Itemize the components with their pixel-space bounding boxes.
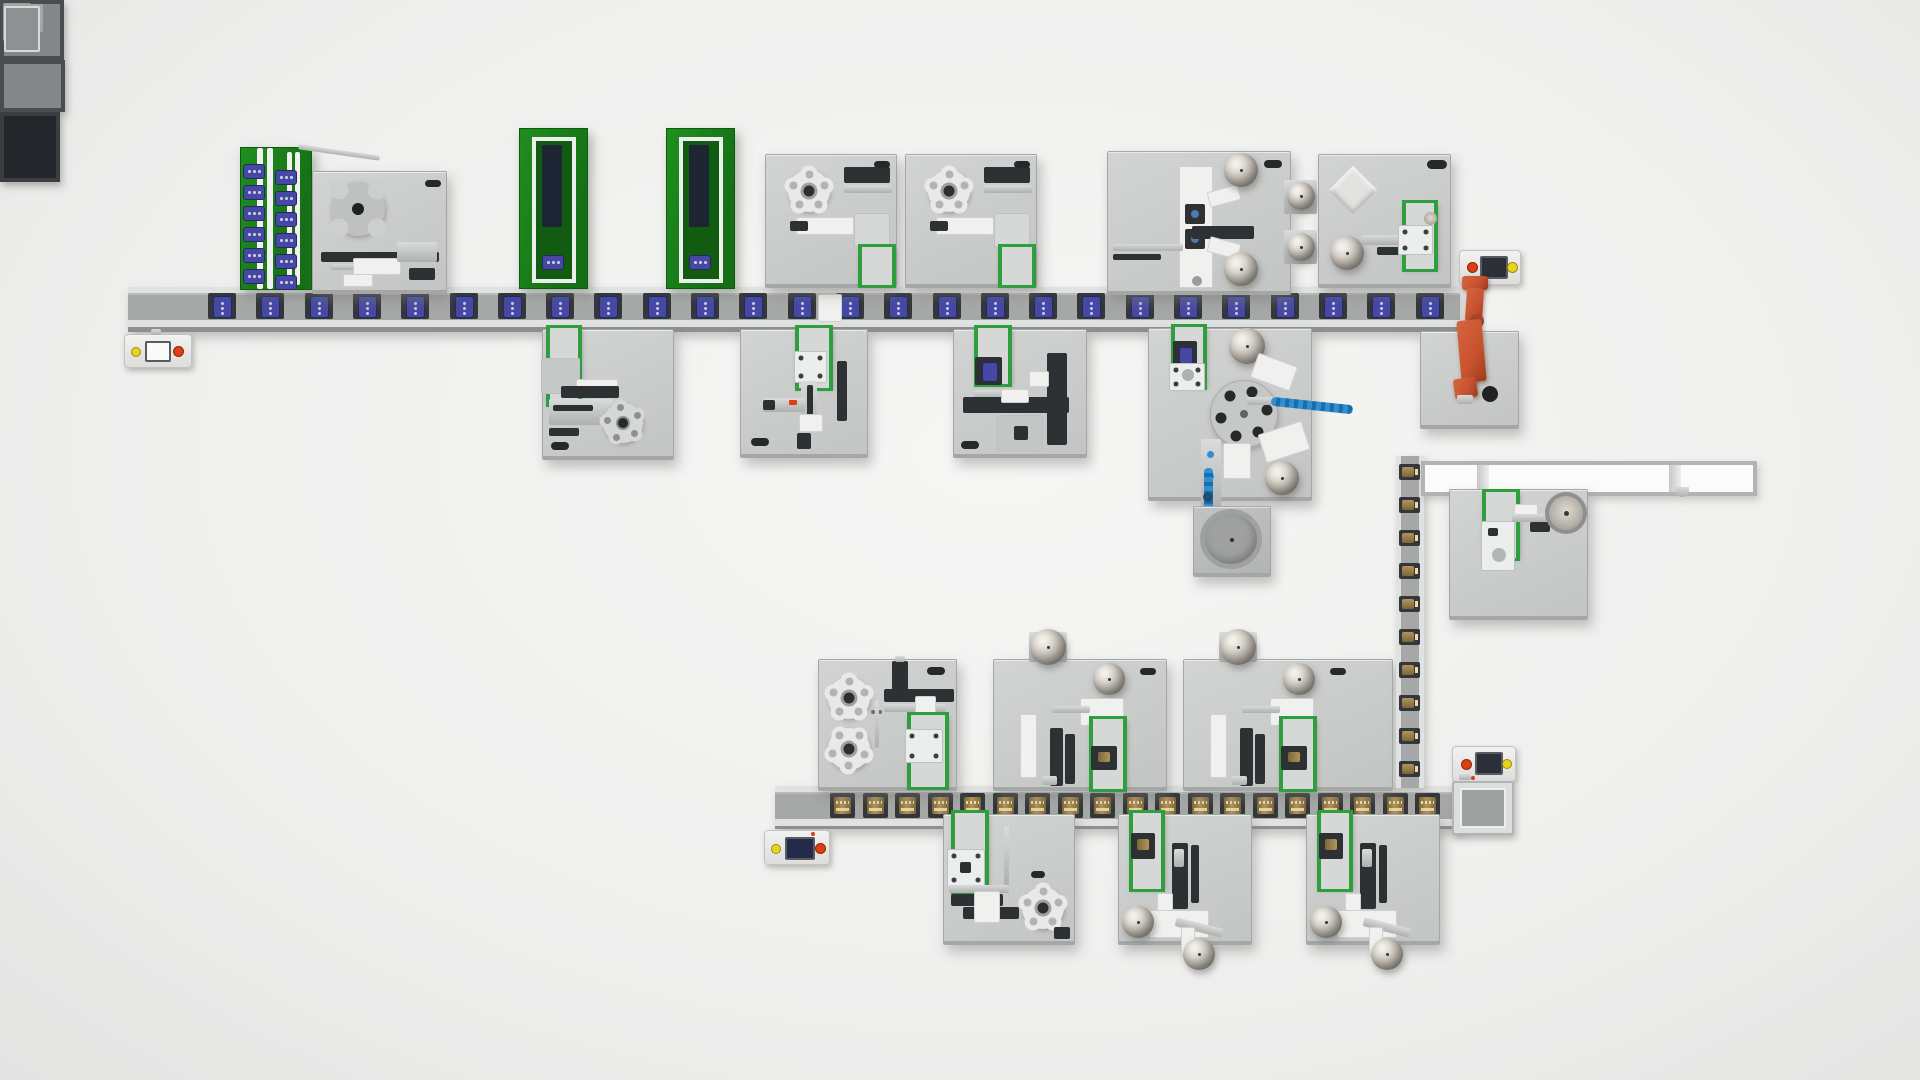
track-end bbox=[1203, 492, 1213, 502]
clamp-block bbox=[409, 268, 435, 280]
pallet-carrier bbox=[498, 293, 526, 319]
pallet-carrier bbox=[1399, 629, 1420, 645]
green-lift bbox=[998, 247, 1036, 285]
red-marker bbox=[789, 400, 797, 405]
pallet-carrier bbox=[208, 293, 236, 319]
pallet-carrier bbox=[1222, 293, 1250, 319]
pallet-carrier bbox=[1399, 497, 1420, 513]
dial-table-station bbox=[1148, 328, 1312, 501]
pallet-carrier bbox=[830, 793, 855, 818]
foot-block bbox=[1042, 776, 1057, 785]
sphere-feeder-station-1 bbox=[993, 659, 1167, 791]
magazine-part-blue bbox=[275, 275, 297, 290]
feeder-block bbox=[397, 242, 437, 262]
yellow-button[interactable] bbox=[1507, 262, 1518, 273]
bowl-feeder-sphere bbox=[1310, 906, 1342, 938]
pallet-carrier bbox=[1399, 530, 1420, 546]
pallet-carrier bbox=[1271, 293, 1299, 319]
right-process-station bbox=[1449, 489, 1588, 620]
pallet-carrier bbox=[305, 293, 333, 319]
slide-rail bbox=[844, 185, 892, 193]
magazine-tower-1 bbox=[240, 147, 312, 290]
part-gold bbox=[1325, 839, 1337, 850]
tool-plate bbox=[1210, 714, 1227, 778]
bowl-feeder-station bbox=[1193, 506, 1271, 577]
slide-block bbox=[1377, 247, 1399, 255]
rotary-turntable bbox=[331, 182, 385, 236]
slide-rail bbox=[984, 185, 1032, 193]
hmi-screen[interactable] bbox=[1475, 752, 1503, 775]
bowl-feeder-sphere bbox=[1224, 153, 1258, 187]
handle-slot bbox=[1140, 668, 1156, 675]
dial-segment bbox=[856, 746, 873, 763]
magazine-part-blue bbox=[243, 185, 265, 200]
pallet-carrier bbox=[353, 293, 381, 319]
pallet-carrier bbox=[1399, 464, 1420, 480]
bowl-feeder-sphere bbox=[1287, 182, 1315, 210]
dial-segment bbox=[840, 757, 857, 774]
feed-rail bbox=[1052, 706, 1090, 713]
bowl-feeder-sphere bbox=[1122, 906, 1154, 938]
pallet-carrier bbox=[739, 293, 767, 319]
assembly-station-2 bbox=[905, 154, 1037, 288]
pallet-carrier bbox=[256, 293, 284, 319]
dial-segment bbox=[925, 177, 942, 194]
guide-pole bbox=[1004, 826, 1009, 886]
magazine-part-blue bbox=[243, 164, 265, 179]
handle-slot bbox=[874, 161, 890, 168]
pallet-carrier bbox=[1399, 761, 1420, 777]
hmi-terminal-bottom-right bbox=[1452, 746, 1516, 782]
feed-rail bbox=[1242, 706, 1280, 713]
dial-segment bbox=[1035, 883, 1052, 900]
bowl-feeder-sphere bbox=[1183, 938, 1215, 970]
pallet-carrier bbox=[1090, 793, 1115, 818]
estop-light bbox=[811, 832, 815, 836]
slide-bar bbox=[1379, 845, 1387, 903]
part-blue bbox=[1179, 347, 1193, 364]
red-button[interactable] bbox=[1461, 759, 1472, 770]
bowl-feeder-sphere bbox=[1371, 938, 1403, 970]
feeder-station-big bbox=[1107, 151, 1291, 295]
dial-segment bbox=[941, 166, 958, 183]
handle-slot bbox=[425, 180, 441, 187]
disc-center bbox=[1564, 511, 1569, 516]
dial-segment bbox=[831, 727, 848, 744]
carriage bbox=[1001, 389, 1029, 403]
parts-dial bbox=[788, 170, 830, 212]
bowl-feeder-sphere bbox=[1287, 233, 1315, 261]
slide-bar bbox=[1191, 845, 1199, 903]
fixture-bore bbox=[1182, 369, 1194, 381]
dial-segment bbox=[831, 703, 848, 720]
fixture-plate bbox=[1481, 521, 1515, 571]
sensor-plate bbox=[974, 891, 1000, 923]
magazine-tower-2 bbox=[519, 128, 588, 289]
magazine-slot bbox=[689, 145, 709, 227]
feeder-station-right bbox=[1318, 154, 1451, 288]
track-roller bbox=[1207, 451, 1214, 458]
pallet-carrier bbox=[1399, 596, 1420, 612]
slide-rail bbox=[1361, 235, 1403, 245]
factory-line-top-view bbox=[0, 0, 1920, 1080]
magazine-part-blue bbox=[243, 248, 265, 263]
disc-magazine-station bbox=[818, 659, 957, 791]
parts-dial bbox=[603, 403, 643, 443]
pallet-carrier bbox=[1399, 728, 1420, 744]
pallet-carrier bbox=[1077, 293, 1105, 319]
pallet-carrier bbox=[1253, 793, 1278, 818]
robot-gripper bbox=[1457, 395, 1473, 404]
part-gold bbox=[1137, 839, 1149, 850]
foot-block bbox=[797, 433, 811, 449]
magazine-rail bbox=[267, 148, 273, 289]
assembly-station-1 bbox=[765, 154, 897, 288]
bowl-feeder-sphere bbox=[1220, 629, 1256, 665]
bowl-feeder-sphere bbox=[1283, 663, 1315, 695]
dial-segment bbox=[856, 684, 873, 701]
pallet-carrier bbox=[643, 293, 671, 319]
fixture-plate bbox=[905, 729, 943, 763]
process-station-1 bbox=[542, 329, 674, 460]
dial-segment bbox=[956, 177, 973, 194]
pallet-carrier bbox=[594, 293, 622, 319]
dial-segment bbox=[931, 196, 948, 213]
bracket bbox=[1223, 443, 1251, 479]
center-actuator bbox=[1192, 226, 1254, 239]
slide-bar bbox=[1065, 734, 1075, 784]
pallet-carrier bbox=[546, 293, 574, 319]
vertical-pallet-row bbox=[1396, 456, 1424, 788]
dial-segment bbox=[1050, 894, 1067, 911]
dial-segment bbox=[368, 219, 387, 238]
fixture-bore bbox=[1492, 548, 1506, 562]
hmi-terminal-top-left bbox=[124, 334, 192, 368]
below-station-1 bbox=[943, 814, 1075, 945]
dial-segment bbox=[1230, 430, 1241, 441]
dial-segment bbox=[609, 430, 624, 445]
platform-port bbox=[1482, 386, 1498, 402]
parts-dial bbox=[928, 170, 970, 212]
magazine-part-blue bbox=[243, 227, 265, 242]
guide-pole bbox=[875, 700, 879, 748]
green-lift bbox=[858, 247, 896, 285]
linear-slide bbox=[984, 167, 1030, 183]
pallet-carrier bbox=[981, 293, 1009, 319]
bowl-feeder-sphere bbox=[1224, 252, 1258, 286]
pallet-carrier bbox=[788, 293, 816, 319]
part-gold bbox=[1098, 752, 1110, 762]
process-station-2 bbox=[740, 329, 868, 458]
slide-rail bbox=[1113, 244, 1183, 251]
slider-block bbox=[1362, 849, 1372, 867]
dial-segment bbox=[329, 180, 348, 199]
linear-slide bbox=[844, 167, 890, 183]
dial-segment bbox=[816, 177, 833, 194]
guide-bar bbox=[837, 361, 847, 421]
process-station-3 bbox=[953, 329, 1087, 458]
conveyor-lift-gate bbox=[818, 294, 842, 322]
handle-slot bbox=[1330, 668, 1346, 675]
handle-slot bbox=[1264, 160, 1282, 168]
dial-segment bbox=[810, 196, 827, 213]
magazine-part-blue bbox=[275, 254, 297, 269]
dial-segment bbox=[1216, 412, 1227, 423]
vertical-link-conveyor bbox=[1396, 456, 1424, 788]
bowl-feeder-sphere bbox=[1030, 629, 1066, 665]
sphere-feeder-station-2 bbox=[1183, 659, 1393, 791]
pallet-carrier bbox=[1399, 563, 1420, 579]
parts-dial bbox=[1022, 887, 1064, 929]
dial-segment bbox=[841, 673, 858, 690]
base-block bbox=[549, 428, 579, 436]
beam-mount bbox=[1675, 487, 1689, 497]
dial-segment bbox=[627, 426, 642, 441]
metal-disc bbox=[1424, 212, 1437, 225]
gripper-unit bbox=[353, 258, 401, 275]
actuator-tip bbox=[763, 400, 775, 410]
handle-slot bbox=[1427, 160, 1447, 169]
part-blue bbox=[982, 362, 998, 382]
dial-segment bbox=[329, 219, 348, 238]
pallet-carrier bbox=[1399, 695, 1420, 711]
terminal-knob bbox=[1459, 774, 1471, 780]
dial-segment bbox=[851, 727, 868, 744]
slide-bar bbox=[1255, 734, 1265, 784]
pallet-carrier bbox=[1319, 293, 1347, 319]
dial-segment bbox=[950, 196, 967, 213]
disc-magazine bbox=[828, 677, 870, 719]
foot-block bbox=[1054, 927, 1070, 939]
hmi-screen[interactable] bbox=[785, 837, 815, 860]
handle-slot bbox=[961, 441, 979, 449]
vise-jaw bbox=[553, 405, 593, 411]
dial-segment bbox=[801, 166, 818, 183]
handle-slot bbox=[751, 438, 769, 446]
handle-slot bbox=[927, 667, 945, 675]
pallet-carrier bbox=[863, 793, 888, 818]
dial-segment bbox=[850, 703, 867, 720]
fixture-plate bbox=[854, 213, 890, 247]
below-station-2 bbox=[1118, 814, 1252, 945]
magazine-part-blue bbox=[275, 191, 297, 206]
dial-segment bbox=[1019, 894, 1036, 911]
outfeed-elevator-bottom bbox=[1452, 781, 1514, 835]
dial-segment bbox=[825, 684, 842, 701]
clamp bbox=[1488, 528, 1498, 536]
fixture-plate bbox=[794, 351, 827, 383]
pallet-carrier bbox=[1399, 662, 1420, 678]
slider-block bbox=[1174, 849, 1184, 867]
pallet-carrier bbox=[1416, 293, 1444, 319]
pallet-carrier bbox=[1126, 293, 1154, 319]
magazine-slot bbox=[542, 145, 562, 227]
dial-segment bbox=[1261, 405, 1272, 416]
below-station-3 bbox=[1306, 814, 1440, 945]
vertical-actuator bbox=[892, 661, 908, 691]
dial-segment bbox=[368, 180, 387, 199]
yellow-button[interactable] bbox=[1502, 759, 1512, 769]
dial-segment bbox=[1224, 390, 1235, 401]
bowl-feeder-sphere bbox=[1093, 663, 1125, 695]
tool-block bbox=[799, 414, 823, 432]
red-button[interactable] bbox=[1467, 262, 1478, 273]
elevator-tray bbox=[1460, 788, 1506, 828]
hmi-terminal-bottom-left bbox=[764, 830, 830, 865]
infeed-elevator-bottom bbox=[0, 112, 60, 182]
terminal-connector bbox=[151, 329, 161, 335]
foot bbox=[1192, 276, 1202, 286]
dial-segment bbox=[791, 196, 808, 213]
dial-segment bbox=[600, 413, 615, 428]
dial-segment bbox=[630, 408, 645, 423]
nest-pocket bbox=[960, 862, 971, 873]
handle-slot bbox=[1031, 871, 1045, 878]
magazine-part-blue bbox=[275, 212, 297, 227]
magazine-part-blue bbox=[243, 206, 265, 221]
yellow-button[interactable] bbox=[131, 347, 141, 357]
hmi-screen[interactable] bbox=[145, 341, 171, 362]
handle-slot bbox=[551, 442, 569, 450]
pallet-carrier bbox=[450, 293, 478, 319]
pallet-carrier bbox=[1367, 293, 1395, 319]
red-button[interactable] bbox=[173, 346, 184, 357]
bowl-feeder-sphere bbox=[1265, 461, 1299, 495]
linear-slide bbox=[561, 386, 619, 398]
yellow-button[interactable] bbox=[771, 844, 781, 854]
dial-segment bbox=[613, 400, 628, 415]
tool-block bbox=[343, 274, 373, 287]
slide-block bbox=[1113, 254, 1161, 260]
fixture-plate bbox=[1398, 225, 1433, 255]
estop-light bbox=[1471, 776, 1475, 780]
pallet-carrier bbox=[401, 293, 429, 319]
elevator-tray bbox=[4, 6, 40, 52]
fixture-plate bbox=[994, 213, 1030, 247]
clamp bbox=[790, 221, 808, 231]
handle-slot bbox=[1014, 161, 1030, 168]
pallet-carrier bbox=[691, 293, 719, 319]
red-button[interactable] bbox=[815, 843, 826, 854]
nest-pocket bbox=[1014, 426, 1028, 440]
beam-tie bbox=[1477, 465, 1489, 492]
pallet-carrier bbox=[895, 793, 920, 818]
pallet-carrier bbox=[933, 293, 961, 319]
actuator-cap bbox=[895, 656, 905, 662]
dial-segment bbox=[785, 177, 802, 194]
pallet-carrier bbox=[1029, 293, 1057, 319]
foot-block bbox=[1232, 776, 1247, 785]
disc-magazine bbox=[828, 728, 870, 770]
tool-plate bbox=[1020, 714, 1037, 778]
blue-feed-track bbox=[1271, 397, 1353, 415]
part-gold bbox=[1288, 752, 1300, 762]
dial-segment bbox=[1025, 913, 1042, 930]
clamp bbox=[930, 221, 948, 231]
magazine-part-blue bbox=[243, 269, 265, 284]
magazine-part-blue bbox=[275, 233, 297, 248]
dial-segment bbox=[824, 745, 841, 762]
outfeed-elevator-top bbox=[0, 60, 65, 112]
scara-robot-arm bbox=[1456, 319, 1486, 383]
magazine-part-blue bbox=[689, 255, 711, 270]
carriage bbox=[1029, 371, 1049, 387]
rotary-index-station bbox=[312, 171, 447, 294]
diamond-plate bbox=[1329, 166, 1377, 214]
pallet-carrier bbox=[1174, 293, 1202, 319]
magazine-part-blue bbox=[542, 255, 564, 270]
pallet-carrier bbox=[884, 293, 912, 319]
gantry-y bbox=[1047, 353, 1067, 445]
magazine-part-blue bbox=[275, 170, 297, 185]
magazine-tower-3 bbox=[666, 128, 735, 289]
vibratory-bowl bbox=[1205, 514, 1257, 564]
bowl-feeder-sphere bbox=[1330, 236, 1364, 270]
press-center bbox=[1191, 210, 1199, 218]
